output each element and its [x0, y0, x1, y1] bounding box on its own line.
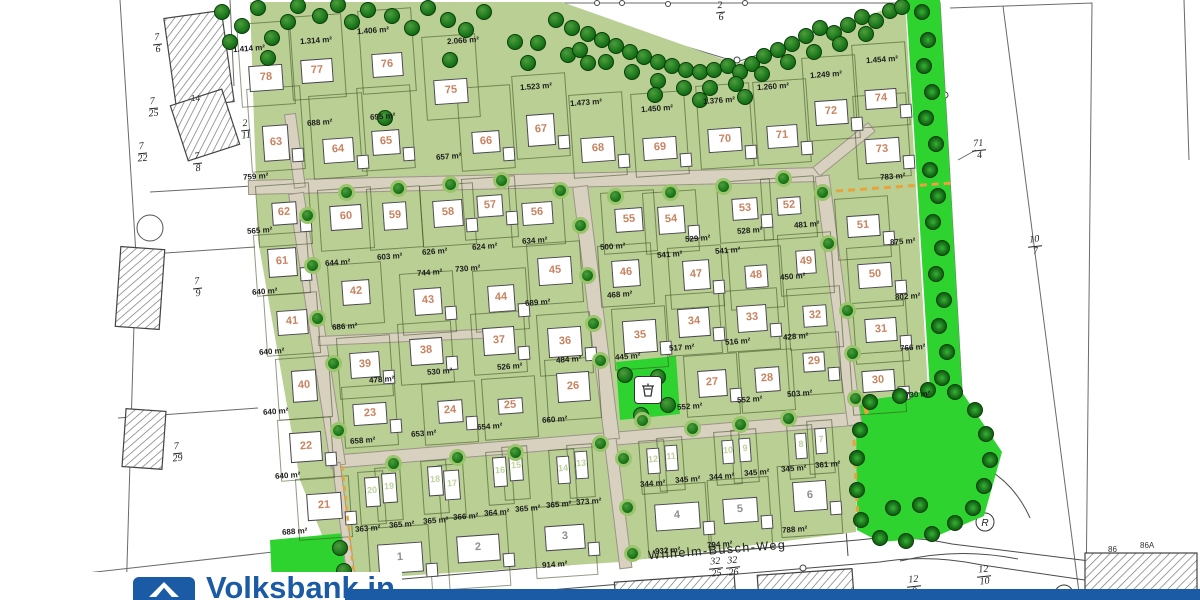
tree-icon: [754, 66, 770, 82]
plot-number: 39: [351, 357, 380, 371]
plot-number: 63: [262, 135, 291, 149]
plot-number: 53: [731, 201, 760, 215]
parcel-number-fraction: 3226: [725, 555, 741, 578]
plot-area-label: 516 m²: [725, 336, 751, 347]
plot-number: 49: [792, 254, 821, 268]
street-tree-icon: [390, 180, 407, 197]
street-tree-icon: [684, 420, 701, 437]
tree-icon: [934, 240, 950, 256]
tree-icon: [898, 533, 914, 549]
plot-number: 1: [386, 550, 415, 564]
tree-icon: [384, 8, 400, 24]
plot-area-label: 695 m²: [370, 111, 396, 122]
plot-area-label: 644 m²: [325, 257, 351, 268]
plot-area-label: 744 m²: [417, 267, 443, 278]
fraction-denominator: 9: [195, 288, 201, 299]
tree-icon: [360, 2, 376, 18]
tree-icon: [922, 162, 938, 178]
tree-icon: [404, 20, 420, 36]
tree-icon: [918, 110, 934, 126]
tree-icon: [916, 58, 932, 74]
tree-icon: [925, 214, 941, 230]
tree-icon: [872, 530, 888, 546]
plot-number: 6: [796, 488, 825, 502]
tree-icon: [936, 292, 952, 308]
plot-area-label: 875 m²: [890, 236, 916, 247]
tree-icon: [234, 18, 250, 34]
street-tree-icon: [309, 310, 326, 327]
plot-number: 30: [864, 373, 893, 387]
plot-number: 42: [342, 284, 371, 298]
plot-area-label: 654 m²: [477, 421, 503, 432]
plot-number: 64: [324, 142, 353, 156]
plot-area-label: 640 m²: [275, 470, 301, 481]
tree-icon: [862, 394, 878, 410]
plot-area-label: 653 m²: [411, 428, 437, 439]
plot-area-label: 445 m²: [615, 351, 641, 362]
tree-icon: [598, 54, 614, 70]
plot-number: 61: [268, 254, 297, 268]
plot-number: 15: [502, 459, 531, 471]
plot-number: 56: [523, 205, 552, 219]
plot-area-label: 541 m²: [657, 249, 683, 260]
fraction-denominator: 10: [979, 576, 990, 587]
tree-icon: [660, 397, 676, 413]
map-annotation: 14: [191, 94, 200, 103]
plot-number: 68: [584, 141, 613, 155]
plot-area-label: 686 m²: [332, 321, 358, 332]
plot-number: 3: [551, 529, 580, 543]
tree-icon: [982, 452, 998, 468]
plot-area-label: 529 m²: [685, 233, 711, 244]
plot-number: 46: [612, 265, 641, 279]
plot-number: 52: [775, 198, 804, 212]
plot-area-label: 344 m²: [709, 471, 735, 482]
plot-number: 55: [615, 212, 644, 226]
plot-area-label: 478 m²: [369, 374, 395, 385]
plot-area-label: 634 m²: [522, 235, 548, 246]
plot-area-label: 373 m²: [576, 496, 602, 507]
tree-icon: [440, 12, 456, 28]
street-tree-icon: [615, 450, 632, 467]
plot-number: 44: [487, 290, 516, 304]
plot-area-label: 345 m²: [781, 463, 807, 474]
parcel-number-fraction: 107: [1027, 234, 1043, 257]
tree-icon: [978, 426, 994, 442]
plot-area-label: 530 m²: [427, 366, 453, 377]
plot-area-label: 428 m²: [783, 331, 809, 342]
parcel-number-fraction: 1210: [976, 564, 992, 587]
plot-area-label: 640 m²: [263, 406, 289, 417]
plot-area-label: 450 m²: [780, 271, 806, 282]
tree-icon: [572, 42, 588, 58]
plot-number: 9: [731, 442, 760, 454]
tree-icon: [931, 318, 947, 334]
plot-area-label: 626 m²: [422, 246, 448, 257]
tree-icon: [924, 526, 940, 542]
parcel-number-fraction: 722: [136, 142, 148, 165]
tree-icon: [976, 478, 992, 494]
tree-icon: [332, 540, 348, 556]
plot-area-label: 528 m²: [737, 225, 763, 236]
plot-area-label: 481 m²: [794, 219, 820, 230]
plot-number: 74: [867, 91, 896, 105]
plot-number: 31: [867, 322, 896, 336]
street-tree-icon: [507, 444, 524, 461]
plot-area-label: 783 m²: [880, 171, 906, 182]
plot-area-label: 688 m²: [307, 117, 333, 128]
street-tree-icon: [839, 302, 856, 319]
tree-icon: [849, 482, 865, 498]
tree-icon: [914, 4, 930, 20]
fraction-denominator: 11: [241, 130, 251, 141]
tree-icon: [885, 500, 901, 516]
tree-icon: [507, 34, 523, 50]
plot-area-label: 552 m²: [677, 401, 703, 412]
plot-number: 78: [252, 70, 281, 84]
plot-number: 7: [807, 433, 836, 445]
fraction-denominator: 6: [155, 44, 161, 55]
street-tree-icon: [325, 355, 342, 372]
street-tree-icon: [592, 435, 609, 452]
plot-area-label: 658 m²: [350, 435, 376, 446]
plot-area-label: 365 m²: [423, 515, 449, 526]
plot-number: 2: [464, 540, 493, 554]
plot-number: 24: [436, 403, 465, 417]
street-tree-icon: [338, 184, 355, 201]
tree-icon: [853, 512, 869, 528]
parcel-number-fraction: 729: [171, 442, 183, 465]
tree-icon: [947, 384, 963, 400]
tree-icon: [520, 55, 536, 71]
plot-number: 27: [698, 375, 727, 389]
fraction-denominator: 29: [172, 453, 183, 464]
plot-number: 69: [646, 140, 675, 154]
plot-area-label: 640 m²: [259, 346, 285, 357]
plot-area-label: 914 m²: [542, 559, 568, 570]
plot-area-label: 526 m²: [497, 361, 523, 372]
street-tree-icon: [585, 315, 602, 332]
street-tree-icon: [775, 170, 792, 187]
parcel-number-fraction: 725: [147, 97, 159, 120]
plot-area-label: 344 m²: [640, 478, 666, 489]
fraction-denominator: 22: [137, 153, 148, 164]
fraction-denominator: 4: [977, 150, 983, 161]
plot-area-label: 517 m²: [669, 342, 695, 353]
street-tree-icon: [814, 184, 831, 201]
plot-number: 66: [472, 134, 501, 148]
street-tree-icon: [493, 172, 510, 189]
plot-area-label: 468 m²: [607, 289, 633, 300]
plot-area-label: 361 m²: [815, 459, 841, 470]
plot-number: 13: [567, 457, 596, 469]
tree-icon: [806, 44, 822, 60]
plot-area-label: 759 m²: [243, 171, 269, 182]
plot-area-label: 603 m²: [377, 251, 403, 262]
plot-number: 71: [768, 128, 797, 142]
tree-icon: [965, 500, 981, 516]
plot-number: 37: [485, 333, 514, 347]
plot-area-label: 345 m²: [675, 474, 701, 485]
plot-area-label: 541 m²: [715, 245, 741, 256]
plot-number: 59: [381, 208, 410, 222]
map-annotation: 86A: [1140, 541, 1154, 550]
street-tree-icon: [449, 449, 466, 466]
plot-number: 77: [303, 63, 332, 77]
street-tree-icon: [715, 178, 732, 195]
tree-icon: [260, 50, 276, 66]
plot-number: 28: [753, 371, 782, 385]
plot-number: 29: [800, 354, 829, 368]
street-tree-icon: [607, 188, 624, 205]
plot-number: 58: [434, 205, 463, 219]
plot-area-label: 802 m²: [895, 291, 921, 302]
tree-icon: [912, 497, 928, 513]
plot-number: 25: [496, 398, 525, 412]
playground-basket-icon: [634, 376, 662, 404]
fraction-denominator: 7: [1033, 246, 1039, 257]
plot-area-label: 345 m²: [744, 467, 770, 478]
street-tree-icon: [732, 416, 749, 433]
plot-number: 50: [861, 267, 890, 281]
plot-area-label: 365 m²: [515, 503, 541, 514]
fraction-denominator: 8: [195, 163, 201, 174]
fraction-denominator: 25: [711, 568, 722, 579]
street-tree-icon: [304, 257, 321, 274]
volksbank-logo-text: Volksbank in: [206, 570, 395, 600]
plot-number: 57: [476, 198, 505, 212]
plot-area-label: 932 m²: [655, 545, 681, 556]
street-tree-icon: [820, 235, 837, 252]
tree-icon: [939, 344, 955, 360]
plot-number: 72: [817, 104, 846, 118]
street-tree-icon: [634, 412, 651, 429]
path-markings: [0, 0, 1200, 600]
tree-icon: [530, 35, 546, 51]
plot-area-label: 794 m²: [707, 539, 733, 550]
plot-area-label: 484 m²: [556, 354, 582, 365]
tree-icon: [676, 80, 692, 96]
plot-area-label: 640 m²: [252, 286, 278, 297]
plot-area-label: 503 m²: [787, 388, 813, 399]
tree-icon: [312, 8, 328, 24]
gable-icon: [149, 582, 179, 597]
plot-area-label: 657 m²: [436, 151, 462, 162]
tree-icon: [852, 422, 868, 438]
plot-number: 23: [356, 406, 385, 420]
tree-icon: [928, 136, 944, 152]
plot-area-label: 624 m²: [472, 241, 498, 252]
map-annotation: 86: [1108, 545, 1117, 554]
street-tree-icon: [579, 267, 596, 284]
street-tree-icon: [619, 499, 636, 516]
plot-number: 5: [726, 502, 755, 516]
street-tree-icon: [592, 352, 609, 369]
street-tree-icon: [385, 455, 402, 472]
plot-number: 45: [541, 263, 570, 277]
tree-icon: [264, 30, 280, 46]
tree-icon: [250, 0, 266, 16]
tree-icon: [849, 450, 865, 466]
plot-number: 67: [527, 122, 556, 136]
plot-number: 47: [682, 267, 711, 281]
plot-area-label: 366 m²: [453, 511, 479, 522]
street-tree-icon: [442, 176, 459, 193]
tree-icon: [928, 266, 944, 282]
brand-blue-bar: [345, 589, 1200, 600]
plot-number: 73: [868, 142, 897, 156]
plot-number: 51: [849, 218, 878, 232]
fraction-denominator: 26: [728, 567, 739, 578]
street-tree-icon: [299, 207, 316, 224]
plot-area-label: 730 m²: [455, 263, 481, 274]
parcel-number-fraction: 3225: [708, 556, 724, 579]
plot-number: 26: [559, 379, 588, 393]
plot-number: 22: [292, 439, 321, 453]
plot-number: 65: [372, 134, 401, 148]
fraction-denominator: 6: [718, 12, 724, 23]
plot-area-label: 730 m²: [905, 389, 931, 400]
parcel-number-fraction: 714: [971, 138, 987, 161]
street-tree-icon: [572, 217, 589, 234]
plot-number: 40: [290, 378, 319, 392]
tree-icon: [920, 32, 936, 48]
plot-area-label: 660 m²: [542, 414, 568, 425]
plot-number: 32: [801, 308, 830, 322]
volksbank-logo-icon: [133, 577, 195, 600]
plot-area-label: 365 m²: [389, 519, 415, 530]
plot-number: 19: [375, 480, 404, 492]
tree-icon: [420, 0, 436, 16]
tree-icon: [280, 14, 296, 30]
plot-number: 41: [278, 314, 307, 328]
plot-number: 75: [437, 83, 466, 97]
tree-icon: [930, 188, 946, 204]
plot-number: 21: [310, 498, 339, 512]
street-tree-icon: [662, 184, 679, 201]
plot-number: 48: [742, 268, 771, 282]
plot-area-label: 363 m²: [355, 523, 381, 534]
street-tree-icon: [552, 182, 569, 199]
plot-area-label: 688 m²: [282, 526, 308, 537]
tree-icon: [624, 64, 640, 80]
street-tree-icon: [624, 545, 641, 562]
plot-area-label: 788 m²: [782, 524, 808, 535]
tree-icon: [564, 20, 580, 36]
plot-number: 62: [270, 205, 299, 219]
plot-number: 43: [414, 293, 443, 307]
plot-number: 36: [551, 334, 580, 348]
street-tree-icon: [780, 410, 797, 427]
plot-number: 70: [711, 132, 740, 146]
tree-icon: [548, 12, 564, 28]
plot-number: 60: [332, 209, 361, 223]
tree-icon: [858, 26, 874, 42]
tree-icon: [617, 367, 633, 383]
street-tree-icon: [844, 345, 861, 362]
plot-number: 17: [438, 477, 467, 489]
plot-area-label: 365 m²: [546, 499, 572, 510]
fraction-denominator: 25: [148, 108, 159, 119]
plot-area-label: 552 m²: [737, 394, 763, 405]
plot-number: 4: [663, 508, 692, 522]
plot-number: 76: [373, 57, 402, 71]
tree-icon: [442, 52, 458, 68]
plot-number: 38: [412, 343, 441, 357]
tree-icon: [214, 4, 230, 20]
plot-number: 54: [657, 212, 686, 226]
tree-icon: [924, 84, 940, 100]
tree-icon: [476, 4, 492, 20]
site-development-plan: R A Wilhelm-Busch-Weg Volksbank in 781.4…: [0, 0, 1200, 600]
plot-number: 11: [657, 450, 686, 462]
tree-icon: [934, 370, 950, 386]
street-tree-icon: [330, 422, 347, 439]
plot-area-label: 364 m²: [484, 507, 510, 518]
plot-number: 35: [626, 328, 655, 342]
tree-icon: [967, 402, 983, 418]
tree-icon: [780, 54, 796, 70]
plot-area-label: 689 m²: [525, 297, 551, 308]
tree-icon: [647, 87, 663, 103]
tree-icon: [832, 36, 848, 52]
plot-area-label: 565 m²: [247, 225, 273, 236]
tree-icon: [947, 515, 963, 531]
plot-number: 33: [738, 310, 767, 324]
tree-icon: [737, 89, 753, 105]
plot-number: 34: [680, 314, 709, 328]
plot-area-label: 500 m²: [600, 241, 626, 252]
plot-area-label: 766 m²: [900, 342, 926, 353]
